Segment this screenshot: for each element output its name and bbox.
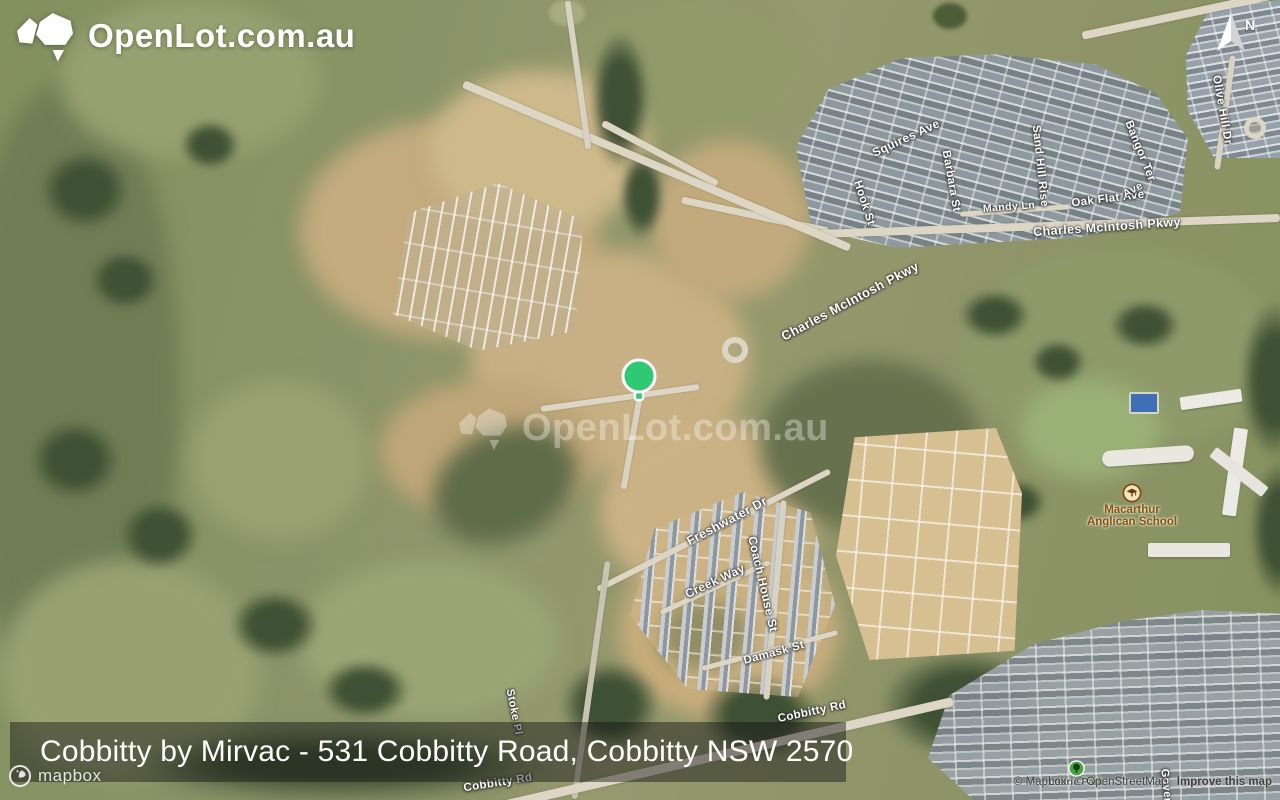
mapbox-logo[interactable]: mapbox — [8, 764, 101, 788]
school-icon — [1122, 483, 1142, 503]
north-arrow-icon — [1217, 13, 1231, 51]
roundabout — [722, 337, 748, 363]
brand-wordmark: OpenLot.com.au — [88, 17, 355, 55]
mapbox-icon — [8, 764, 32, 788]
compass-control[interactable]: N — [1212, 6, 1260, 63]
park-icon — [1068, 760, 1085, 777]
street-label: Charles McIntosh Pkwy — [779, 258, 922, 343]
osm-attribution-link[interactable]: © OpenStreetMap — [1075, 776, 1168, 788]
improve-map-link[interactable]: Improve this map — [1177, 776, 1272, 788]
north-arrow-icon — [1231, 13, 1245, 51]
field — [190, 380, 370, 540]
graded-lot-grid — [836, 428, 1022, 660]
listing-caption-bar: Cobbitty by Mirvac - 531 Cobbitty Road, … — [10, 722, 846, 782]
place-label: MacarthurAnglican School — [1087, 504, 1177, 528]
school-building — [1148, 543, 1230, 557]
roundabout — [1244, 117, 1266, 139]
map-viewport[interactable]: Squires AveHook StBarbara StSand Hill Ri… — [0, 0, 1280, 800]
pond — [933, 3, 967, 29]
mapbox-wordmark: mapbox — [38, 766, 101, 786]
openlot-brand: OpenLot.com.au — [14, 8, 355, 64]
compass-north-letter: N — [1245, 17, 1255, 33]
mapbox-attribution-link[interactable]: © Mapbox — [1014, 776, 1067, 788]
school-pool — [1129, 392, 1159, 414]
location-marker-pin[interactable] — [618, 356, 660, 406]
listing-caption-text: Cobbitty by Mirvac - 531 Cobbitty Road, … — [40, 735, 853, 769]
openlot-logo-icon — [14, 8, 76, 64]
map-attribution: © Mapbox © OpenStreetMap Improve this ma… — [1014, 776, 1272, 788]
